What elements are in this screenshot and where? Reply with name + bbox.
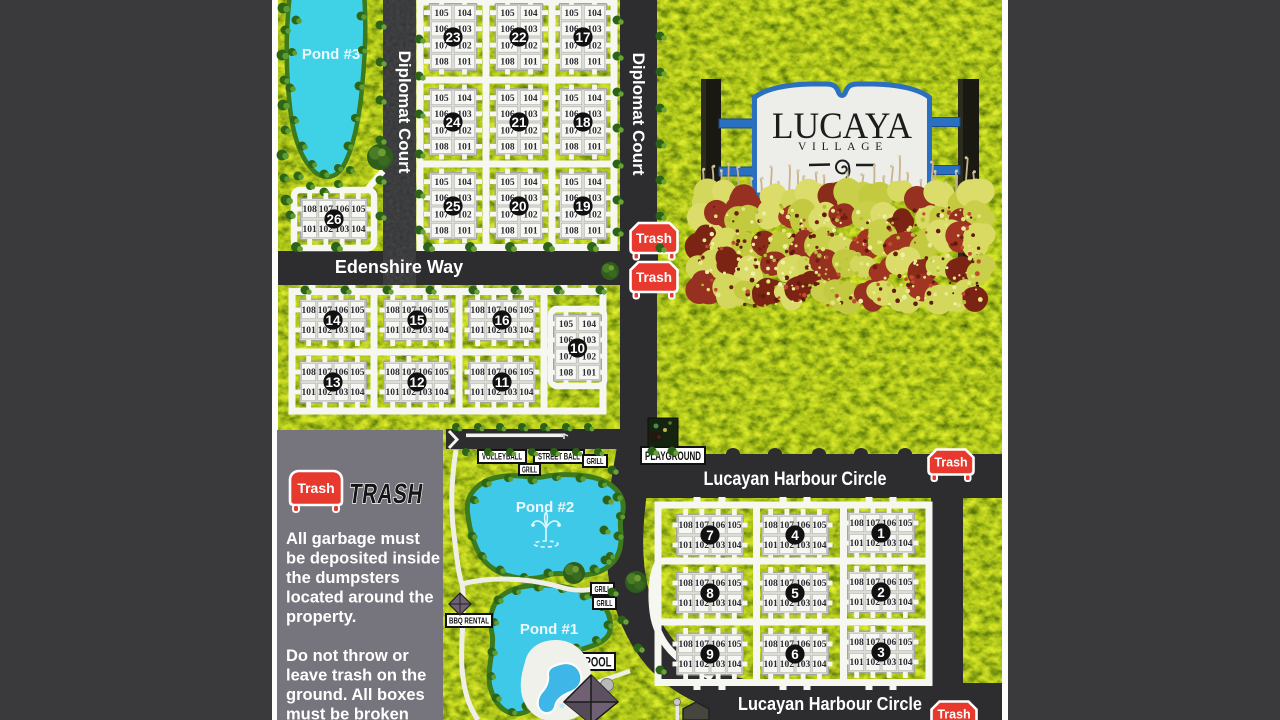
svg-text:105: 105: [727, 521, 742, 531]
svg-text:105: 105: [898, 519, 913, 529]
svg-text:23: 23: [445, 30, 461, 45]
svg-text:105: 105: [350, 306, 365, 316]
svg-text:13: 13: [325, 375, 341, 390]
svg-text:105: 105: [812, 521, 827, 531]
svg-text:BBQ RENTAL: BBQ RENTAL: [449, 616, 489, 626]
svg-text:12: 12: [409, 375, 424, 390]
svg-text:Lucayan Harbour Circle: Lucayan Harbour Circle: [738, 694, 922, 714]
svg-text:108: 108: [386, 368, 401, 378]
svg-text:Lucayan Harbour Circle: Lucayan Harbour Circle: [704, 469, 887, 490]
svg-text:20: 20: [511, 199, 526, 214]
svg-text:104: 104: [727, 660, 742, 670]
svg-text:101: 101: [764, 599, 779, 609]
svg-text:108: 108: [564, 58, 579, 68]
svg-text:105: 105: [500, 178, 515, 188]
svg-text:108: 108: [434, 143, 449, 153]
svg-text:108: 108: [764, 579, 779, 589]
svg-text:104: 104: [898, 539, 913, 549]
svg-text:108: 108: [471, 368, 486, 378]
svg-text:101: 101: [457, 143, 472, 153]
svg-text:Pond #1: Pond #1: [520, 621, 578, 638]
svg-text:25: 25: [445, 199, 461, 214]
svg-text:105: 105: [434, 9, 449, 19]
svg-text:108: 108: [679, 521, 694, 531]
svg-text:104: 104: [587, 9, 602, 19]
svg-text:101: 101: [587, 58, 602, 68]
svg-text:105: 105: [727, 640, 742, 650]
svg-text:101: 101: [587, 143, 602, 153]
svg-text:105: 105: [500, 9, 515, 19]
svg-text:Trash: Trash: [636, 231, 672, 246]
svg-text:104: 104: [350, 326, 365, 336]
svg-text:104: 104: [457, 9, 472, 19]
svg-text:1: 1: [877, 526, 885, 541]
svg-text:101: 101: [302, 326, 317, 336]
svg-text:101: 101: [302, 388, 317, 398]
svg-text:105: 105: [812, 579, 827, 589]
svg-text:26: 26: [326, 212, 342, 227]
svg-text:108: 108: [850, 638, 865, 648]
svg-text:105: 105: [500, 94, 515, 104]
svg-text:101: 101: [457, 227, 472, 237]
svg-text:104: 104: [457, 178, 472, 188]
svg-text:GRILL: GRILL: [597, 598, 613, 608]
svg-text:14: 14: [325, 313, 341, 328]
svg-text:GRILL: GRILL: [587, 456, 604, 466]
svg-text:108: 108: [559, 369, 574, 379]
svg-text:Trash: Trash: [937, 708, 970, 720]
svg-text:17: 17: [575, 30, 590, 45]
svg-text:105: 105: [559, 320, 574, 330]
svg-text:104: 104: [519, 326, 534, 336]
svg-text:108: 108: [303, 205, 318, 215]
svg-text:104: 104: [582, 320, 597, 330]
svg-text:108: 108: [500, 58, 515, 68]
svg-text:105: 105: [564, 9, 579, 19]
svg-text:15: 15: [409, 313, 425, 328]
svg-text:105: 105: [727, 579, 742, 589]
svg-text:104: 104: [727, 541, 742, 551]
svg-text:105: 105: [519, 306, 534, 316]
svg-text:101: 101: [764, 660, 779, 670]
svg-text:108: 108: [764, 521, 779, 531]
svg-text:5: 5: [791, 586, 799, 601]
svg-text:104: 104: [812, 541, 827, 551]
svg-text:108: 108: [471, 306, 486, 316]
svg-text:105: 105: [564, 94, 579, 104]
svg-text:108: 108: [764, 640, 779, 650]
svg-text:101: 101: [850, 598, 865, 608]
svg-text:Diplomat Court: Diplomat Court: [629, 53, 648, 176]
svg-text:101: 101: [582, 369, 597, 379]
svg-text:101: 101: [679, 660, 694, 670]
svg-text:6: 6: [791, 647, 799, 662]
svg-text:22: 22: [511, 30, 526, 45]
svg-text:104: 104: [350, 388, 365, 398]
svg-text:105: 105: [350, 368, 365, 378]
svg-text:105: 105: [519, 368, 534, 378]
svg-text:104: 104: [587, 178, 602, 188]
svg-text:16: 16: [494, 313, 510, 328]
svg-text:Edenshire Way: Edenshire Way: [335, 257, 463, 277]
svg-text:GRILL: GRILL: [522, 465, 537, 474]
svg-text:101: 101: [764, 541, 779, 551]
svg-text:104: 104: [727, 599, 742, 609]
svg-text:101: 101: [587, 227, 602, 237]
svg-text:Do not throw orleave trash on: Do not throw orleave trash on theground.…: [286, 647, 426, 720]
svg-text:101: 101: [457, 58, 472, 68]
svg-text:101: 101: [679, 599, 694, 609]
svg-text:105: 105: [351, 205, 366, 215]
svg-text:104: 104: [523, 9, 538, 19]
svg-text:108: 108: [434, 58, 449, 68]
svg-text:101: 101: [523, 227, 538, 237]
svg-text:19: 19: [575, 199, 590, 214]
svg-text:105: 105: [898, 578, 913, 588]
svg-text:Diplomat Court: Diplomat Court: [395, 51, 414, 174]
svg-text:Pond #3: Pond #3: [302, 46, 360, 63]
svg-text:101: 101: [303, 225, 318, 235]
svg-text:104: 104: [898, 658, 913, 668]
svg-text:104: 104: [434, 326, 449, 336]
svg-text:105: 105: [434, 178, 449, 188]
svg-text:101: 101: [386, 326, 401, 336]
svg-text:8: 8: [706, 586, 714, 601]
svg-text:104: 104: [457, 94, 472, 104]
svg-text:3: 3: [877, 645, 885, 660]
svg-text:VILLAGE: VILLAGE: [798, 139, 888, 153]
svg-text:9: 9: [706, 647, 714, 662]
svg-text:105: 105: [812, 640, 827, 650]
svg-text:11: 11: [495, 375, 510, 390]
svg-text:104: 104: [587, 94, 602, 104]
svg-text:105: 105: [434, 94, 449, 104]
svg-text:Trash: Trash: [636, 270, 672, 285]
svg-text:21: 21: [511, 115, 527, 130]
svg-text:108: 108: [679, 579, 694, 589]
svg-text:Trash: Trash: [934, 456, 967, 470]
svg-text:104: 104: [812, 660, 827, 670]
svg-text:104: 104: [519, 388, 534, 398]
svg-text:10: 10: [570, 341, 585, 356]
svg-text:18: 18: [575, 115, 591, 130]
svg-text:101: 101: [679, 541, 694, 551]
svg-text:108: 108: [564, 143, 579, 153]
svg-text:105: 105: [564, 178, 579, 188]
svg-text:104: 104: [351, 225, 366, 235]
svg-text:101: 101: [386, 388, 401, 398]
svg-text:101: 101: [850, 658, 865, 668]
svg-text:108: 108: [302, 368, 317, 378]
svg-text:101: 101: [523, 143, 538, 153]
svg-text:104: 104: [898, 598, 913, 608]
svg-text:101: 101: [471, 388, 486, 398]
svg-text:7: 7: [706, 528, 714, 543]
svg-text:101: 101: [523, 58, 538, 68]
svg-text:101: 101: [850, 539, 865, 549]
svg-text:104: 104: [523, 94, 538, 104]
svg-text:105: 105: [434, 368, 449, 378]
svg-text:108: 108: [679, 640, 694, 650]
svg-text:108: 108: [434, 227, 449, 237]
svg-text:105: 105: [898, 638, 913, 648]
svg-text:4: 4: [791, 528, 799, 543]
svg-text:101: 101: [471, 326, 486, 336]
svg-text:108: 108: [850, 578, 865, 588]
svg-text:108: 108: [386, 306, 401, 316]
svg-text:104: 104: [812, 599, 827, 609]
svg-text:24: 24: [445, 115, 461, 130]
svg-text:108: 108: [500, 227, 515, 237]
svg-text:108: 108: [302, 306, 317, 316]
svg-text:2: 2: [877, 585, 885, 600]
svg-text:104: 104: [523, 178, 538, 188]
svg-text:108: 108: [564, 227, 579, 237]
svg-text:105: 105: [434, 306, 449, 316]
svg-text:104: 104: [434, 388, 449, 398]
svg-text:108: 108: [500, 143, 515, 153]
svg-text:Trash: Trash: [297, 480, 334, 496]
svg-text:TRASH: TRASH: [347, 478, 425, 509]
svg-text:108: 108: [850, 519, 865, 529]
